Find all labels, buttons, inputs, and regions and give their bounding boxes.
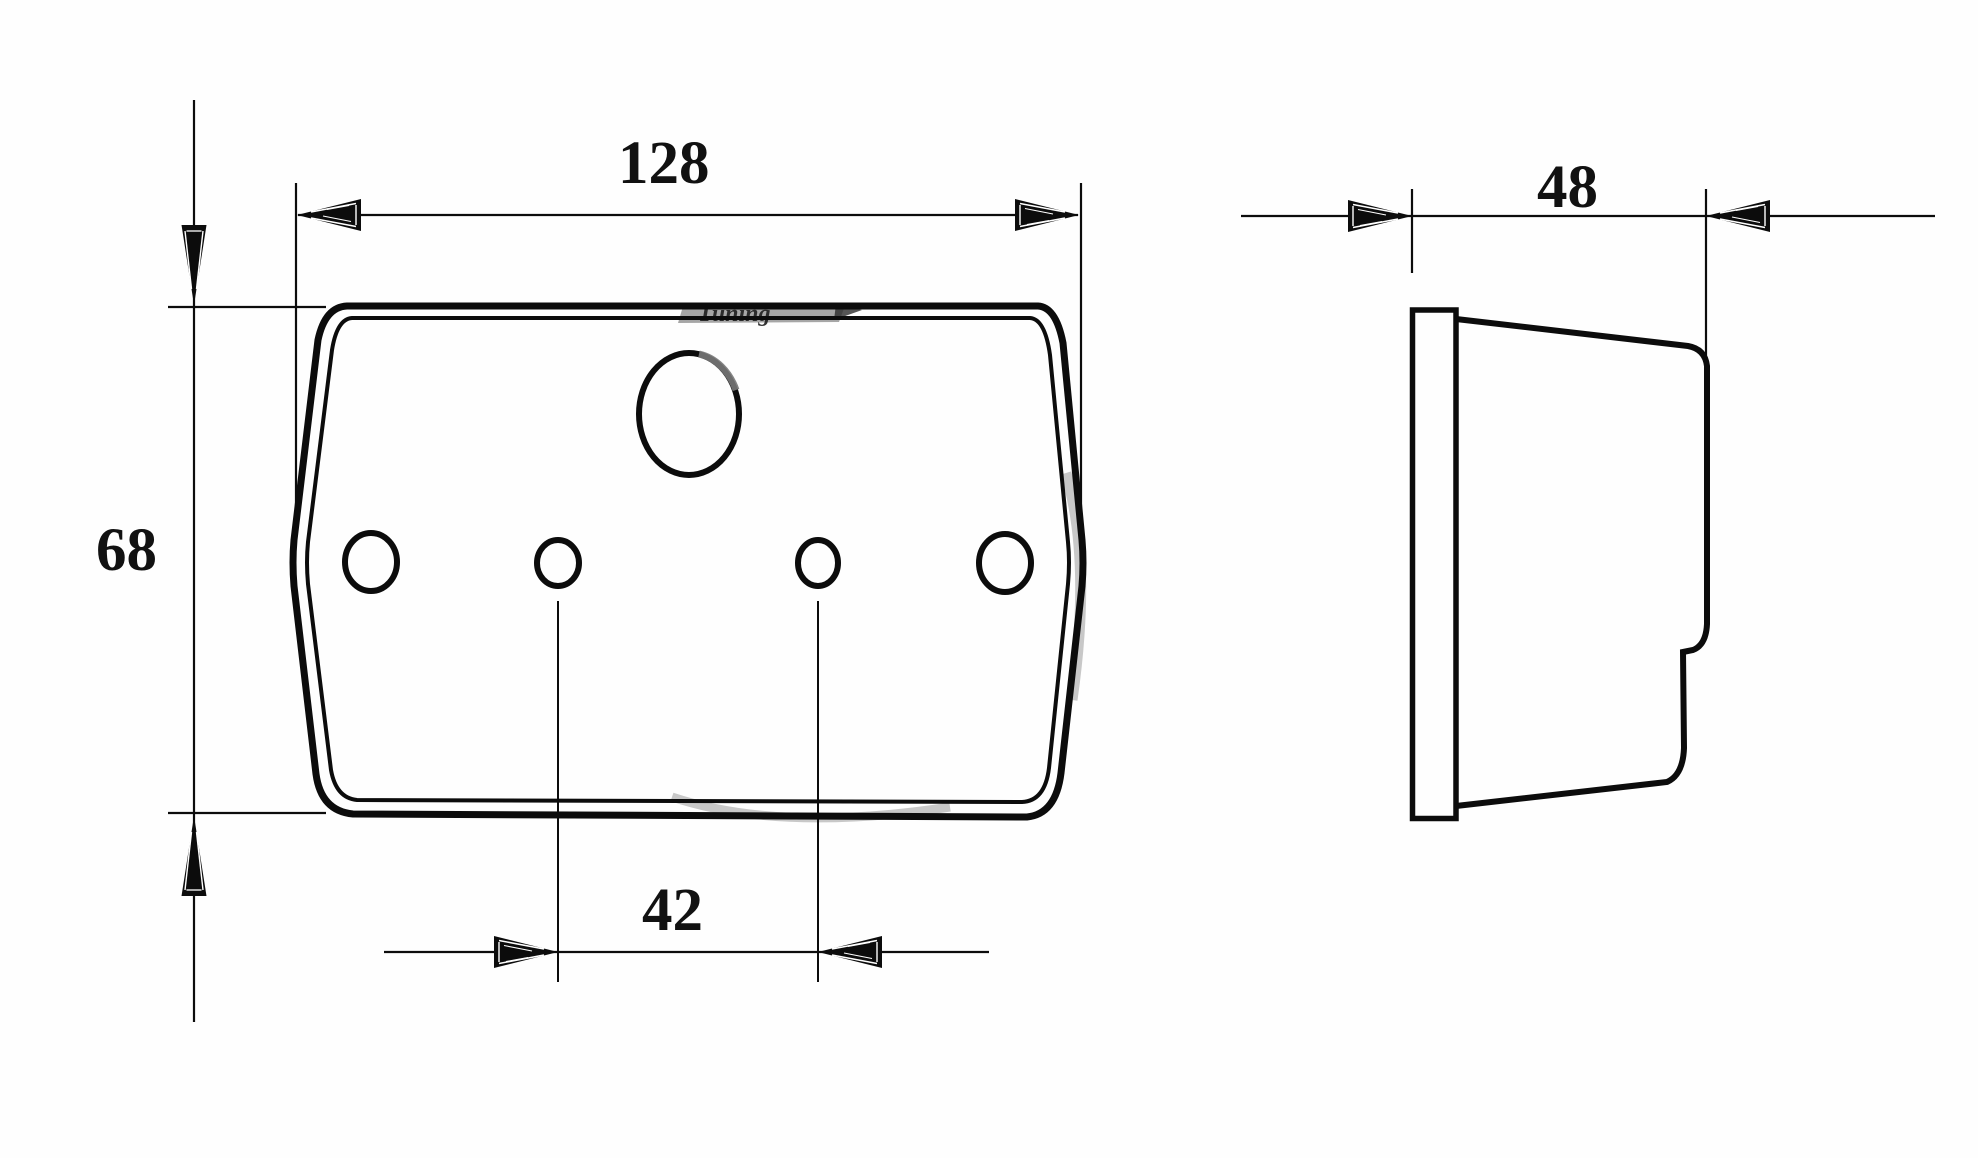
svg-text:68: 68	[96, 517, 157, 584]
svg-text:128: 128	[618, 130, 710, 197]
svg-text:42: 42	[642, 877, 703, 944]
svg-text:48: 48	[1537, 154, 1598, 221]
